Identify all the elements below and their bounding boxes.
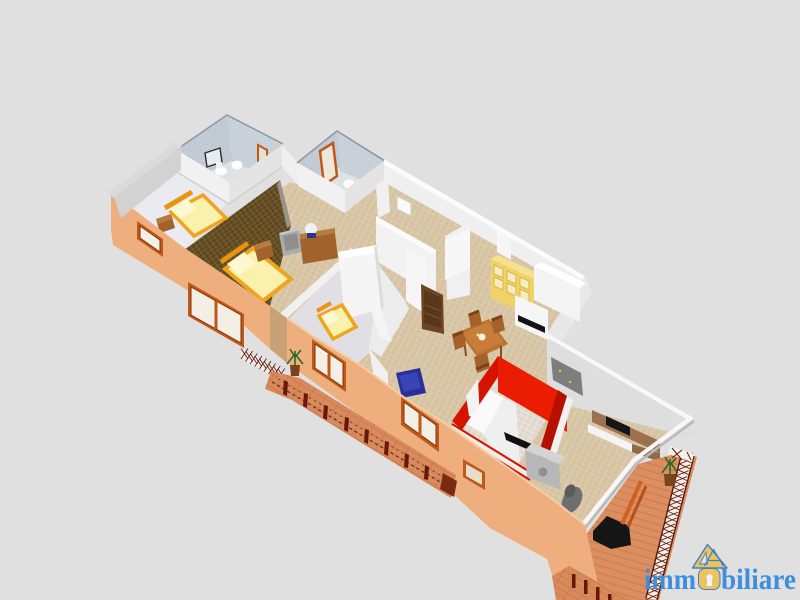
svg-text:imm: imm xyxy=(644,563,696,596)
svg-text:biliare: biliare xyxy=(721,563,796,596)
